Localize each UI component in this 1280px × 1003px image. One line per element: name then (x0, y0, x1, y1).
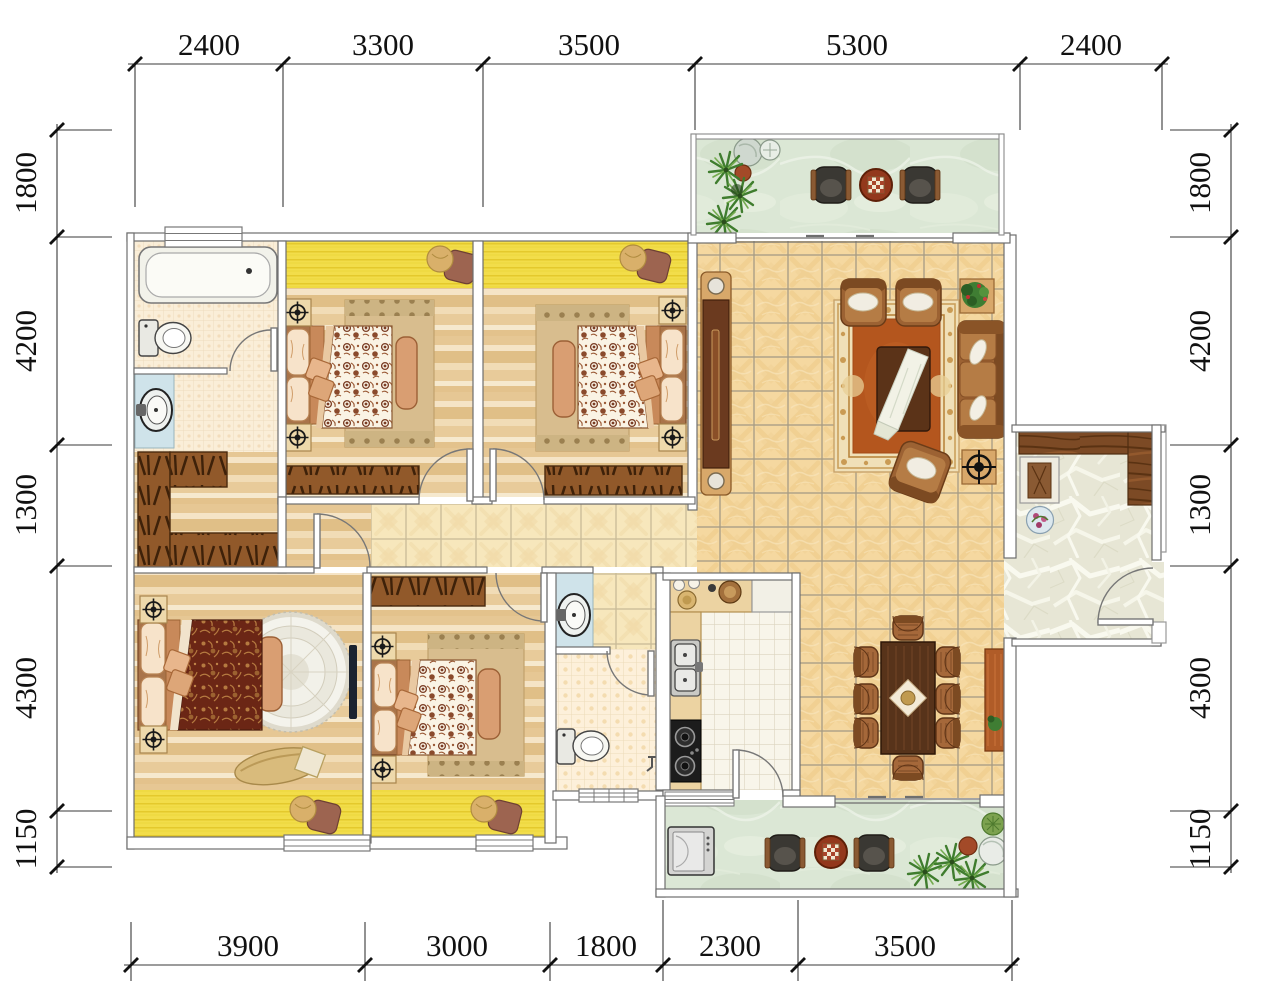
svg-text:2400: 2400 (178, 27, 240, 62)
svg-text:1800: 1800 (575, 928, 637, 963)
svg-text:1800: 1800 (1182, 152, 1217, 214)
svg-text:2400: 2400 (1060, 27, 1122, 62)
svg-text:1300: 1300 (8, 474, 43, 536)
svg-text:4300: 4300 (8, 657, 43, 719)
svg-text:4200: 4200 (1182, 310, 1217, 372)
svg-text:1300: 1300 (1182, 474, 1217, 536)
svg-text:3500: 3500 (558, 27, 620, 62)
svg-text:3300: 3300 (352, 27, 414, 62)
svg-text:3500: 3500 (874, 928, 936, 963)
svg-text:3900: 3900 (217, 928, 279, 963)
svg-text:1150: 1150 (8, 809, 43, 870)
svg-text:4300: 4300 (1182, 657, 1217, 719)
svg-text:5300: 5300 (826, 27, 888, 62)
svg-text:3000: 3000 (426, 928, 488, 963)
svg-text:2300: 2300 (699, 928, 761, 963)
svg-text:4200: 4200 (8, 310, 43, 372)
svg-text:1800: 1800 (8, 152, 43, 214)
svg-text:1150: 1150 (1182, 809, 1217, 870)
